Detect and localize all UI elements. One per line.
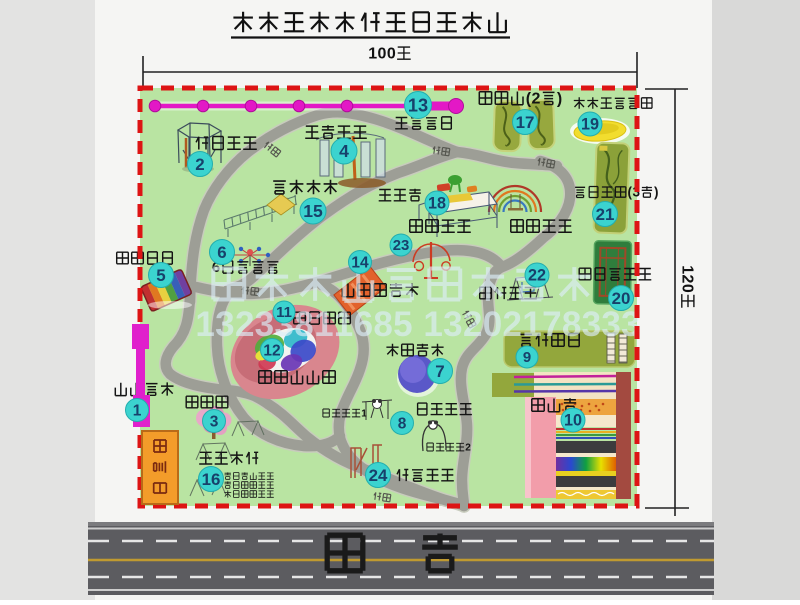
svg-text:13: 13 xyxy=(408,95,428,115)
svg-text:1: 1 xyxy=(334,305,353,344)
svg-text:24: 24 xyxy=(369,466,388,485)
svg-text:17: 17 xyxy=(516,113,535,132)
svg-text:12: 12 xyxy=(263,342,280,359)
svg-text:6: 6 xyxy=(217,243,226,262)
svg-text:8: 8 xyxy=(294,305,313,344)
svg-text:): ) xyxy=(654,185,659,200)
svg-text:6: 6 xyxy=(354,305,373,344)
svg-text:22: 22 xyxy=(528,267,546,285)
svg-text:1: 1 xyxy=(195,305,214,344)
svg-text:1: 1 xyxy=(679,265,696,274)
svg-text:0: 0 xyxy=(378,45,387,62)
svg-text:1: 1 xyxy=(361,408,367,419)
svg-text:5: 5 xyxy=(156,266,165,285)
svg-text:8: 8 xyxy=(398,415,407,432)
svg-text:1: 1 xyxy=(314,305,333,344)
svg-text:0: 0 xyxy=(679,284,696,293)
svg-text:3: 3 xyxy=(582,305,601,344)
svg-text:9: 9 xyxy=(523,350,531,366)
svg-text:21: 21 xyxy=(596,205,615,224)
svg-text:8: 8 xyxy=(373,305,392,344)
svg-text:8: 8 xyxy=(562,305,581,344)
svg-text:2: 2 xyxy=(463,305,482,344)
svg-text:14: 14 xyxy=(351,254,369,271)
svg-text:): ) xyxy=(557,90,562,107)
svg-text:1: 1 xyxy=(423,305,442,344)
svg-text:0: 0 xyxy=(483,305,502,344)
svg-text:2: 2 xyxy=(195,155,204,174)
svg-text:15: 15 xyxy=(303,201,323,221)
svg-text:11: 11 xyxy=(276,305,292,321)
svg-text:7: 7 xyxy=(542,305,561,344)
svg-text:3: 3 xyxy=(210,413,219,430)
svg-text:1: 1 xyxy=(522,305,541,344)
svg-text:3: 3 xyxy=(215,305,234,344)
svg-text:19: 19 xyxy=(581,116,599,134)
svg-text:7: 7 xyxy=(435,362,444,381)
svg-text:2: 2 xyxy=(679,275,696,284)
svg-text:23: 23 xyxy=(393,238,410,254)
svg-text:10: 10 xyxy=(564,412,582,430)
svg-text:2: 2 xyxy=(502,305,521,344)
svg-text:2: 2 xyxy=(465,442,471,453)
svg-text:4: 4 xyxy=(339,141,349,161)
svg-text:3: 3 xyxy=(443,305,462,344)
svg-text:18: 18 xyxy=(428,195,446,213)
svg-text:2: 2 xyxy=(235,305,254,344)
svg-text:2: 2 xyxy=(532,90,541,107)
svg-text:20: 20 xyxy=(612,289,631,308)
svg-text:3: 3 xyxy=(601,305,620,344)
svg-text:1: 1 xyxy=(133,402,142,419)
svg-text:16: 16 xyxy=(202,470,221,489)
svg-text:1: 1 xyxy=(368,45,377,62)
svg-text:5: 5 xyxy=(393,305,412,344)
svg-text:0: 0 xyxy=(387,45,396,62)
